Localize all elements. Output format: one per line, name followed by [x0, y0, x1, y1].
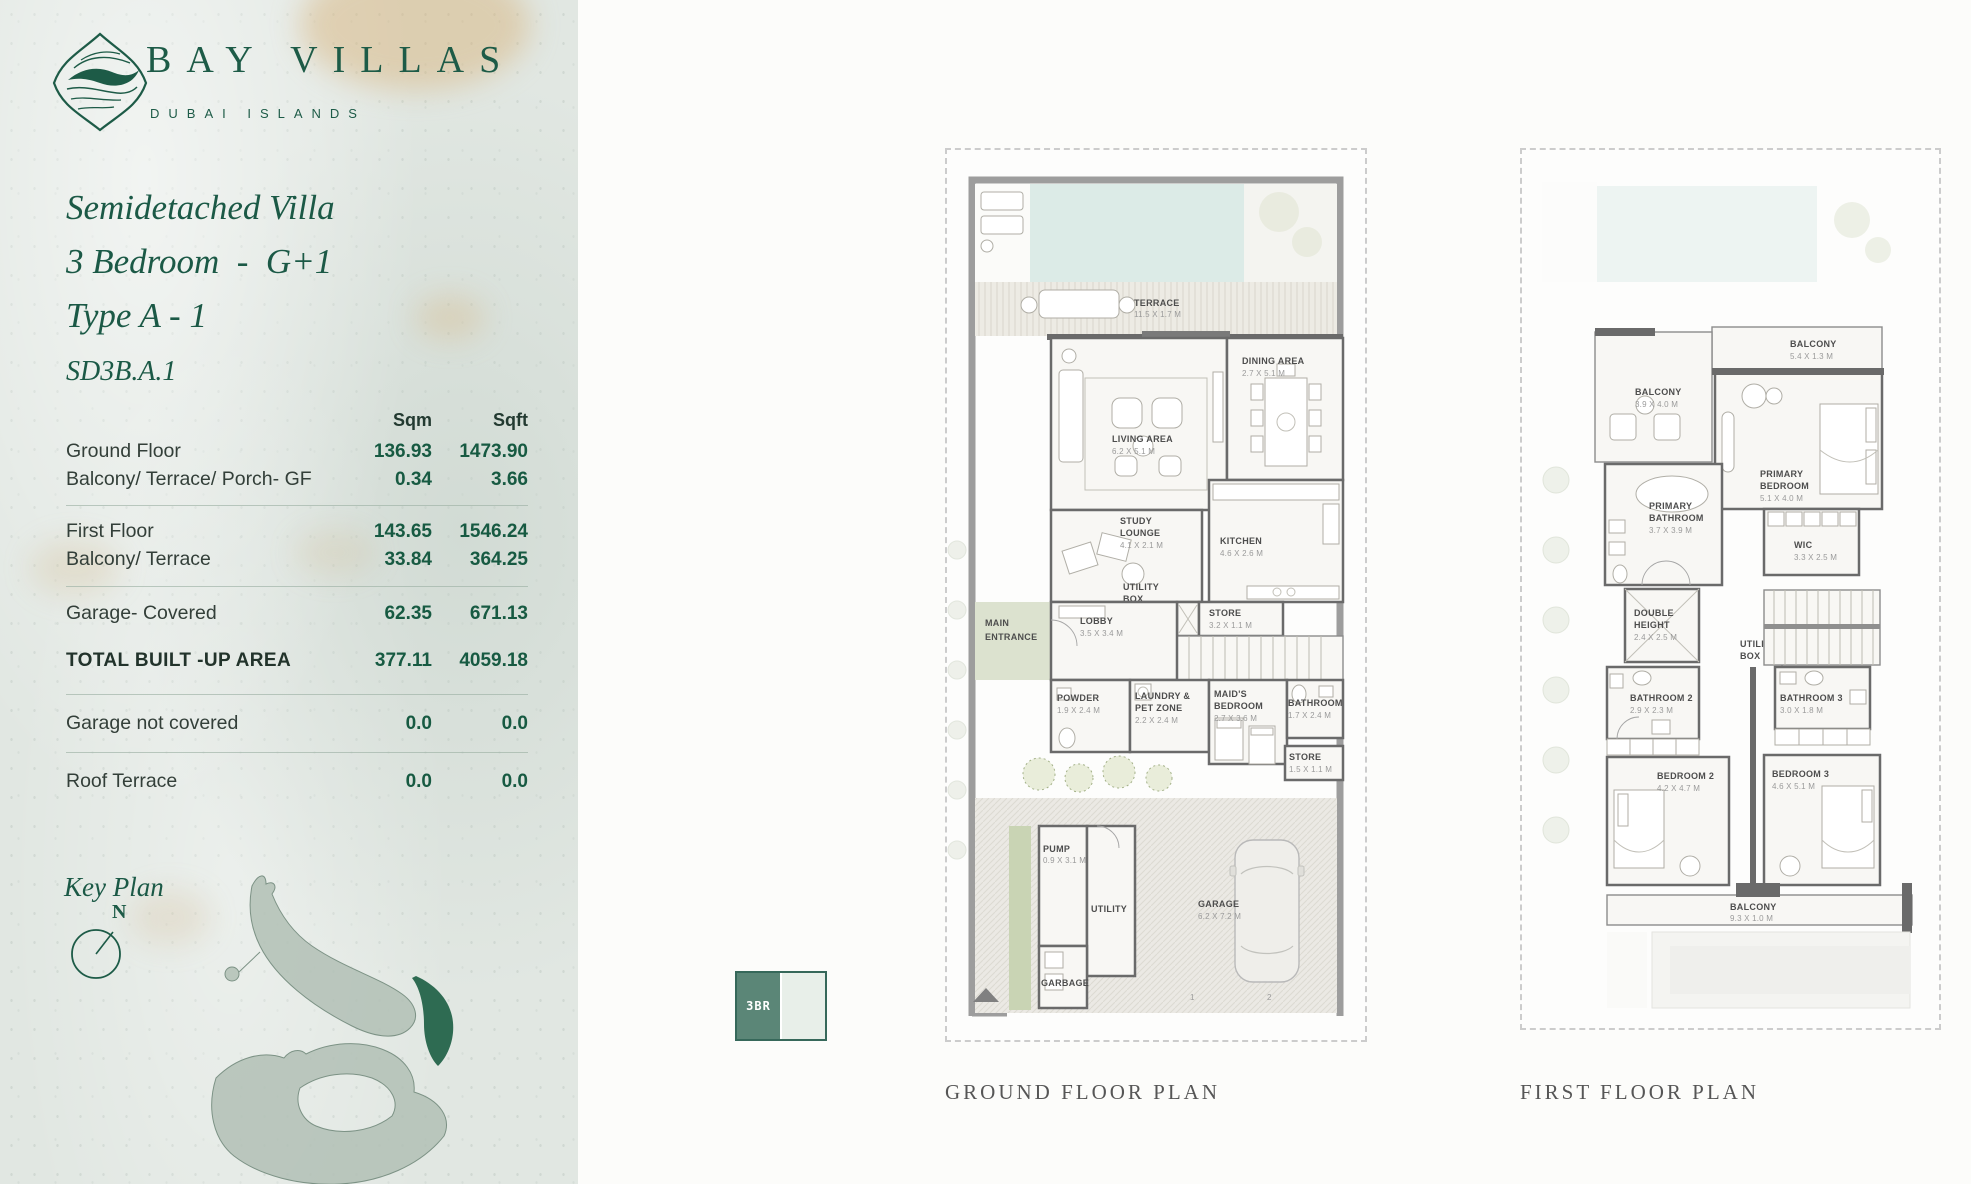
legend-empty-cell [782, 973, 825, 1039]
row-sqm: 143.65 [336, 521, 432, 543]
brand-tagline: DUBAI ISLANDS [150, 106, 366, 121]
room-label-double-height-2: HEIGHT [1634, 620, 1670, 630]
row-sqm: 136.93 [336, 441, 432, 463]
room-label-bedroom2: BEDROOM 2 [1657, 771, 1714, 781]
room-dims-terrace: 11.5 X 1.7 M [1134, 310, 1181, 319]
table-row: Roof Terrace 0.0 0.0 [66, 770, 528, 793]
row-sqft: 1473.90 [432, 441, 528, 463]
room-label-dining: DINING AREA [1242, 356, 1305, 366]
row-label: TOTAL BUILT -UP AREA [66, 650, 336, 672]
ground-floor-drawing: TERRACE 11.5 X 1.7 M LIVING AREA 6.2 X 5… [947, 150, 1365, 1040]
room-label-double-height-1: DOUBLE [1634, 608, 1674, 618]
room-dims-store2: 1.5 X 1.1 M [1289, 765, 1332, 774]
balcony-top [1712, 327, 1882, 372]
compass-icon [72, 930, 120, 978]
table-row: Ground Floor 136.93 1473.90 [66, 440, 528, 463]
highlighted-cluster [412, 976, 453, 1066]
table-total-row: TOTAL BUILT -UP AREA 377.11 4059.18 [66, 650, 528, 672]
row-label: Garage not covered [66, 712, 336, 735]
room-label-entrance-2: ENTRANCE [985, 632, 1037, 642]
table-header-row: Sqm Sqft [66, 410, 528, 431]
room-label-primary-bathroom-2: BATHROOM [1649, 513, 1704, 523]
row-sqft: 4059.18 [432, 650, 528, 672]
row-sqm: 0.34 [336, 469, 432, 491]
row-sqm: 377.11 [336, 650, 432, 672]
row-label: Roof Terrace [66, 770, 336, 793]
first-floor-plan: BALCONY 5.4 X 1.3 M BALCONY 3.9 X 4.0 M … [1520, 148, 1941, 1030]
table-divider [66, 694, 528, 695]
room-dims-pump: 0.9 X 3.1 M [1043, 856, 1086, 865]
ground-floor-plan: TERRACE 11.5 X 1.7 M LIVING AREA 6.2 X 5… [945, 148, 1367, 1042]
villa-bedrooms-title: 3 Bedroom - G+1 [66, 242, 332, 282]
compass-north-label: N [112, 901, 127, 923]
room-label-balcony-bottom: BALCONY [1730, 902, 1777, 912]
room-label-study-1: STUDY [1120, 516, 1152, 526]
row-sqft: 0.0 [432, 771, 528, 793]
first-floor-drawing: BALCONY 5.4 X 1.3 M BALCONY 3.9 X 4.0 M … [1522, 150, 1939, 1028]
row-sqm: 33.84 [336, 549, 432, 571]
room-dims-wic: 3.3 X 2.5 M [1794, 553, 1837, 562]
room-dims-study: 4.1 X 2.1 M [1120, 541, 1163, 550]
villa-type-title: Semidetached Villa [66, 188, 335, 228]
col-header-sqm: Sqm [336, 410, 432, 431]
row-label: Ground Floor [66, 440, 336, 463]
room-label-garage: GARAGE [1198, 899, 1239, 909]
shrubs [1023, 756, 1172, 792]
row-label: Balcony/ Terrace/ Porch- GF [66, 468, 336, 491]
balcony-left [1595, 332, 1712, 462]
row-sqm: 0.0 [336, 771, 432, 793]
row-label: Balcony/ Terrace [66, 548, 336, 571]
utility-room [1087, 826, 1135, 976]
room-dims-balcony-top: 5.4 X 1.3 M [1790, 352, 1833, 361]
room-label-powder: POWDER [1057, 693, 1100, 703]
room-label-utilitybox-1: UTILITY [1123, 582, 1159, 592]
table-divider [66, 505, 528, 506]
room-label-bathroom2: BATHROOM 2 [1630, 693, 1693, 703]
ground-plan-caption: GROUND FLOOR PLAN [945, 1080, 1220, 1105]
room-label-maid-1: MAID'S [1214, 689, 1247, 699]
row-sqft: 364.25 [432, 549, 528, 571]
brochure-page: BAY VILLAS DUBAI ISLANDS Semidetached Vi… [0, 0, 1971, 1184]
table-row: First Floor 143.65 1546.24 [66, 520, 528, 543]
parking-spot-2: 2 [1267, 993, 1272, 1002]
row-sqm: 0.0 [336, 713, 432, 735]
room-label-bathroom: BATHROOM [1288, 698, 1343, 708]
room-dims-dining: 2.7 X 5.1 M [1242, 369, 1285, 378]
room-dims-primary-bathroom: 3.7 X 3.9 M [1649, 526, 1692, 535]
legend-3br-cell: 3BR [737, 973, 782, 1039]
table-divider [66, 752, 528, 753]
room-dims-lobby: 3.5 X 3.4 M [1080, 629, 1123, 638]
room-label-wic: WIC [1794, 540, 1813, 550]
room-dims-store1: 3.2 X 1.1 M [1209, 621, 1252, 630]
table-row: Garage- Covered 62.35 671.13 [66, 602, 528, 625]
islands-map [212, 876, 447, 1184]
room-label-terrace: TERRACE [1134, 298, 1180, 308]
room-dims-bedroom2: 4.2 X 4.7 M [1657, 784, 1700, 793]
first-plan-caption: FIRST FLOOR PLAN [1520, 1080, 1759, 1105]
room-label-utility-box-2: BOX [1740, 651, 1760, 661]
room-dims-bathroom: 1.7 X 2.4 M [1288, 711, 1331, 720]
room-label-garbage: GARBAGE [1041, 978, 1089, 988]
room-dims-kitchen: 4.6 X 2.6 M [1220, 549, 1263, 558]
stairs [1177, 636, 1343, 680]
room-dims-bathroom3: 3.0 X 1.8 M [1780, 706, 1823, 715]
room-label-pump: PUMP [1043, 844, 1070, 854]
parking-spot-1: 1 [1190, 993, 1195, 1002]
stairs [1764, 590, 1880, 665]
room-label-primary-bathroom-1: PRIMARY [1649, 501, 1692, 511]
room-label-primary-bedroom-2: BEDROOM [1760, 481, 1809, 491]
room-label-study-2: LOUNGE [1120, 528, 1160, 538]
room-label-kitchen: KITCHEN [1220, 536, 1262, 546]
col-header-sqft: Sqft [432, 410, 528, 431]
room-dims-maid: 2.7 X 3.6 M [1214, 714, 1257, 723]
row-label: First Floor [66, 520, 336, 543]
bayvillas-logo-icon [40, 28, 160, 136]
room-dims-double-height: 2.4 X 2.5 M [1634, 633, 1677, 642]
table-row: Balcony/ Terrace/ Porch- GF 0.34 3.66 [66, 468, 528, 491]
room-dims-bathroom2: 2.9 X 2.3 M [1630, 706, 1673, 715]
room-label-primary-bedroom-1: PRIMARY [1760, 469, 1803, 479]
room-label-bathroom3: BATHROOM 3 [1780, 693, 1843, 703]
table-row: Garage not covered 0.0 0.0 [66, 712, 528, 735]
unit-type-legend: 3BR [735, 971, 827, 1041]
room-label-store1: STORE [1209, 608, 1241, 618]
row-sqft: 0.0 [432, 713, 528, 735]
table-row: Balcony/ Terrace 33.84 364.25 [66, 548, 528, 571]
room-label-balcony-left: BALCONY [1635, 387, 1682, 397]
brand-name: BAY VILLAS [146, 38, 515, 82]
row-sqm: 62.35 [336, 603, 432, 625]
room-label-lobby: LOBBY [1080, 616, 1113, 626]
room-label-bedroom3: BEDROOM 3 [1772, 769, 1829, 779]
row-sqft: 1546.24 [432, 521, 528, 543]
pool-ghost [1597, 186, 1817, 282]
pool [1030, 184, 1244, 282]
room-dims-living: 6.2 X 5.1 M [1112, 447, 1155, 456]
car-icon [1230, 840, 1304, 982]
row-sqft: 3.66 [432, 469, 528, 491]
room-dims-powder: 1.9 X 2.4 M [1057, 706, 1100, 715]
row-sqft: 671.13 [432, 603, 528, 625]
texture-blotch [415, 295, 485, 340]
room-label-laundry-1: LAUNDRY & [1135, 691, 1190, 701]
room-dims-bedroom3: 4.6 X 5.1 M [1772, 782, 1815, 791]
room-dims-balcony-bottom: 9.3 X 1.0 M [1730, 914, 1773, 923]
key-plan-map: N [0, 870, 578, 1184]
villa-variant-title: Type A - 1 [66, 296, 207, 336]
room-label-balcony-top: BALCONY [1790, 339, 1837, 349]
room-label-utility: UTILITY [1091, 904, 1127, 914]
info-panel: BAY VILLAS DUBAI ISLANDS Semidetached Vi… [0, 0, 578, 1184]
room-label-laundry-2: PET ZONE [1135, 703, 1182, 713]
row-label: Garage- Covered [66, 602, 336, 625]
table-divider [66, 586, 528, 587]
room-dims-garage: 6.2 X 7.2 M [1198, 912, 1241, 921]
room-dims-primary-bedroom: 5.1 X 4.0 M [1760, 494, 1803, 503]
unit-code: SD3B.A.1 [66, 356, 176, 388]
room-label-maid-2: BEDROOM [1214, 701, 1263, 711]
room-label-entrance-1: MAIN [985, 618, 1009, 628]
room-dims-balcony-left: 3.9 X 4.0 M [1635, 400, 1678, 409]
room-dims-laundry: 2.2 X 2.4 M [1135, 716, 1178, 725]
room-label-living: LIVING AREA [1112, 434, 1173, 444]
room-label-store2: STORE [1289, 752, 1321, 762]
